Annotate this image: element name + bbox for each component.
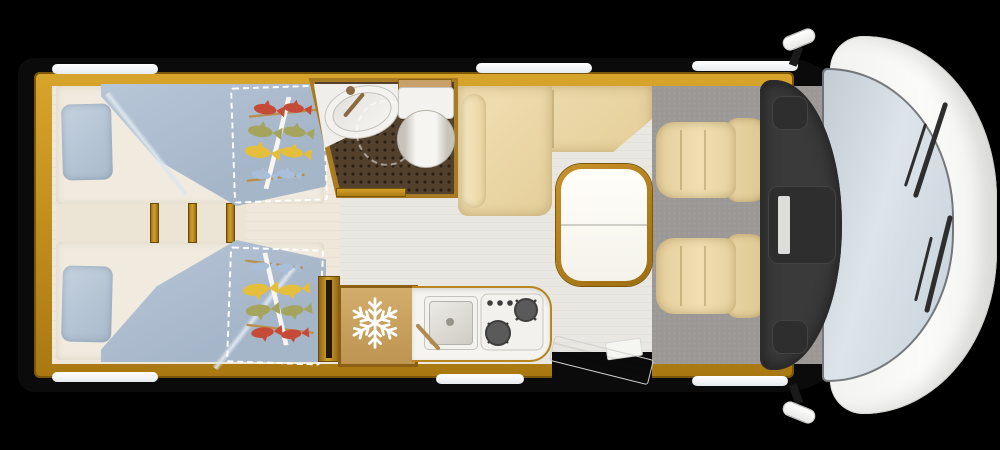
pillow-bottom (61, 265, 113, 342)
window-kitchen-bottom (436, 374, 524, 384)
dash-console-slot (778, 196, 790, 254)
stove-two-burner (480, 292, 544, 352)
dash-vent-bottom (772, 320, 808, 354)
wardrobe-slot (326, 280, 332, 358)
faucet-knob (346, 86, 355, 95)
seat-cushion (656, 122, 736, 198)
window-dinette-top (476, 63, 592, 73)
bench-seam (552, 90, 554, 148)
bed-slat (226, 203, 235, 243)
fish-mobile-icon (235, 92, 322, 195)
pillow-top (61, 103, 113, 180)
snowflake-icon (347, 295, 403, 351)
seat-cushion (656, 238, 736, 314)
bed-slat (150, 203, 159, 243)
window-cab-door-top (692, 61, 798, 71)
dinette-armrest (462, 94, 486, 208)
seat-seam (680, 130, 682, 190)
window-bedroom-top (52, 64, 158, 74)
seat-seam (680, 246, 682, 306)
seat-seam (704, 246, 706, 306)
kitchen-sink-drain (446, 318, 454, 326)
fish-mobile-icon (233, 248, 318, 349)
dash-vent-top (772, 96, 808, 130)
seat-seam (704, 130, 706, 190)
driver-seat (656, 118, 770, 202)
bed-slat (188, 203, 197, 243)
bathroom-door-threshold (336, 188, 406, 197)
window-cab-door-bottom (692, 376, 788, 386)
table-fold-seam (561, 224, 647, 226)
passenger-seat (656, 234, 770, 318)
toilet-bowl (397, 110, 455, 168)
floorplan-canvas (0, 0, 1000, 450)
window-bedroom-bottom (52, 372, 158, 382)
